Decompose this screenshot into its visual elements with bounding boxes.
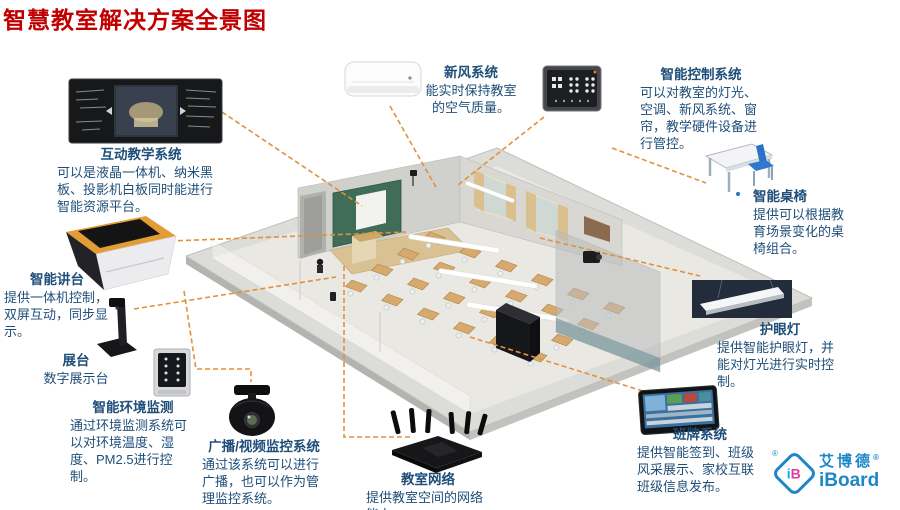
section-control-system: 智能控制系统 可以对教室的灯光、空调、新风系统、窗帘，教学硬件设备进行管控。 (640, 66, 762, 152)
classroom-light-image (692, 280, 792, 323)
registered-mark: ® (873, 453, 879, 462)
section-network: 教室网络 提供教室空间的网络能力。 (366, 471, 490, 510)
logo-cn: 艾博德 (819, 453, 873, 470)
section-desc: 提供智能签到、班级风采展示、家校互联班级信息发布。 (637, 444, 763, 495)
iboard-diamond-icon: iB (771, 450, 818, 497)
logo-text: 艾博德® iBoard (819, 450, 879, 490)
infographic-canvas: 智慧教室解决方案全景图 (0, 0, 900, 510)
section-desc: 提供一体机控制，双屏互动，同步显示。 (4, 289, 110, 340)
section-visualizer: 展台 数字展示台 (30, 352, 122, 387)
wifi-router-image (382, 406, 490, 479)
section-desc: 可以对教室的灯光、空调、新风系统、窗帘，教学硬件设备进行管控。 (640, 84, 762, 152)
section-desc: 提供教室空间的网络能力。 (366, 489, 490, 510)
section-title: 班牌系统 (637, 426, 763, 443)
section-interactive-teaching: 互动教学系统 可以是液晶一体机、纳米黑板、投影机白板同时能进行智能资源平台。 (57, 146, 225, 215)
section-desc: 通过该系统可以进行广播，也可以作为管理监控系统。 (202, 456, 326, 507)
interactive-blackboard-image (68, 78, 223, 149)
section-fresh-air: 新风系统 能实时保持教室的空气质量。 (424, 64, 518, 116)
section-desc: 提供智能护眼灯，并能对灯光进行实时控制。 (717, 339, 843, 390)
section-title: 新风系统 (424, 64, 518, 81)
iboard-logo: ® iB 艾博德® iBoard (772, 450, 879, 490)
section-title: 教室网络 (366, 471, 490, 488)
air-conditioner-image (344, 58, 422, 107)
section-desc: 可以是液晶一体机、纳米黑板、投影机白板同时能进行智能资源平台。 (57, 164, 225, 215)
section-desc: 能实时保持教室的空气质量。 (424, 82, 518, 116)
section-smart-podium: 智能讲台 提供一体机控制，双屏互动，同步显示。 (4, 271, 110, 340)
section-desc: 提供可以根据教育场景变化的桌椅组合。 (753, 206, 849, 257)
section-desc: 数字展示台 (30, 370, 122, 387)
registered-mark: ® (772, 449, 778, 458)
section-title: 智能环境监测 (70, 399, 196, 416)
section-env-monitor: 智能环境监测 通过环境监测系统可以对环境温度、湿度、PM2.5进行控制。 (70, 399, 196, 485)
section-title: 智能桌椅 (753, 188, 849, 205)
projection-screen (356, 190, 386, 230)
ptz-camera-image (224, 383, 280, 442)
section-title: 广播/视频监控系统 (202, 438, 326, 455)
section-smart-desks: 智能桌椅 提供可以根据教育场景变化的桌椅组合。 (753, 188, 849, 257)
section-class-sign: 班牌系统 提供智能签到、班级风采展示、家校互联班级信息发布。 (637, 426, 763, 495)
control-panel-image (542, 64, 602, 119)
section-title: 展台 (30, 352, 122, 369)
section-broadcast: 广播/视频监控系统 通过该系统可以进行广播，也可以作为管理监控系统。 (202, 438, 326, 507)
logo-en: iBoard (819, 471, 879, 490)
section-eye-lamp: 护眼灯 提供智能护眼灯，并能对灯光进行实时控制。 (717, 321, 843, 390)
environment-sensor-image (152, 348, 192, 403)
section-title: 智能控制系统 (640, 66, 762, 83)
curtain (506, 183, 516, 222)
section-title: 护眼灯 (717, 321, 843, 338)
section-title: 智能讲台 (4, 271, 110, 288)
section-desc: 通过环境监测系统可以对环境温度、湿度、PM2.5进行控制。 (70, 417, 196, 485)
line-smart-desks (612, 148, 706, 183)
curtain (526, 191, 536, 232)
section-title: 互动教学系统 (57, 146, 225, 163)
line-broadcast (184, 291, 251, 382)
